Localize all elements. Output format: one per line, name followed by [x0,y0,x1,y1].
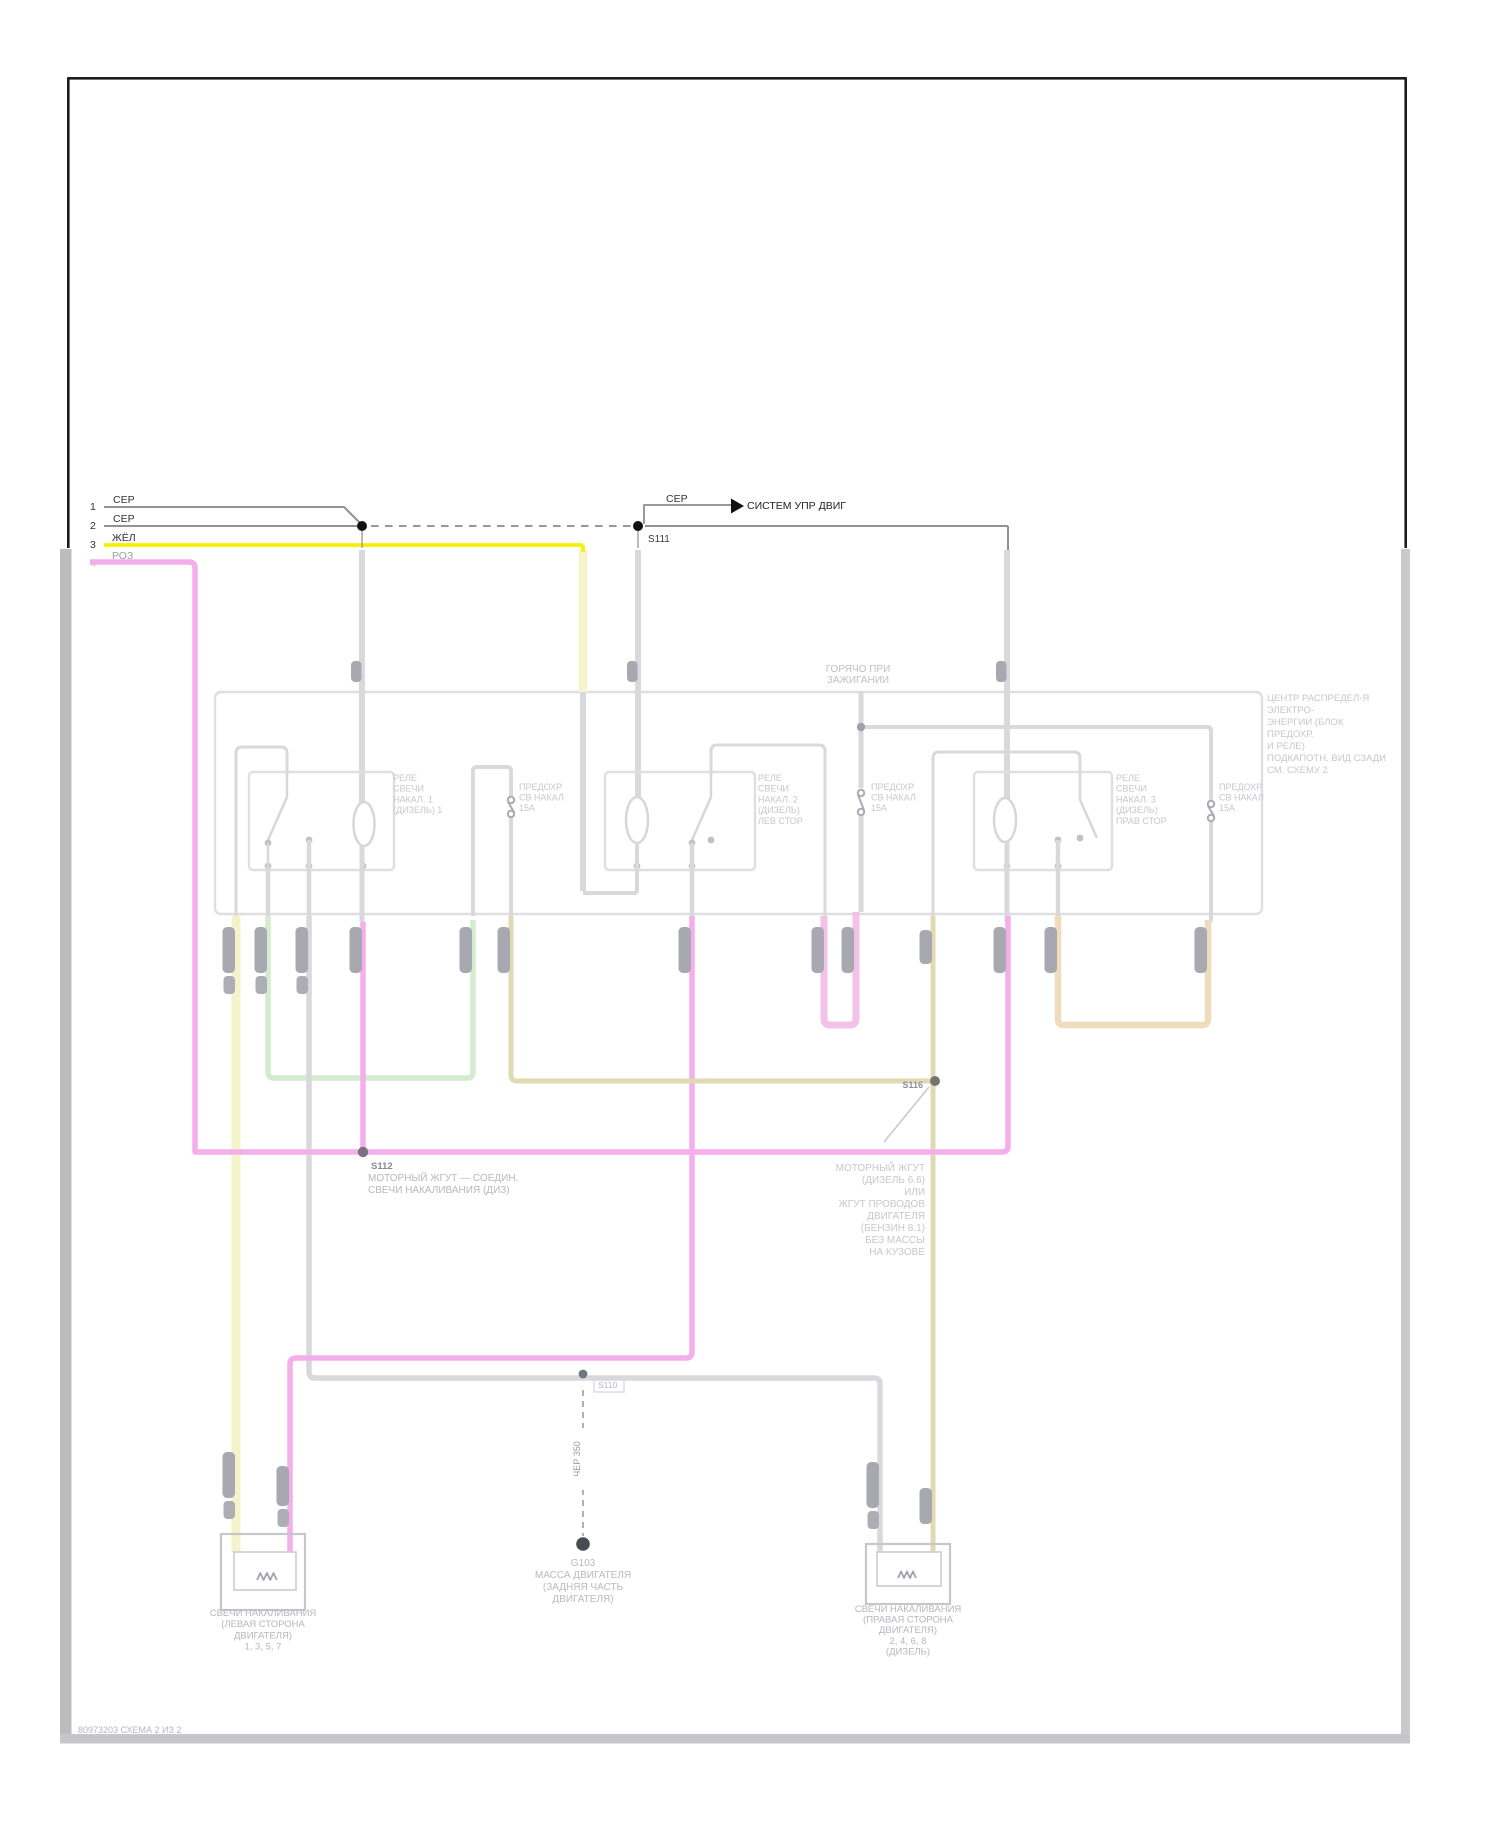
svg-text:S110: S110 [598,1380,617,1390]
svg-text:СВ НАКАЛ: СВ НАКАЛ [519,793,564,803]
svg-text:ИЛИ: ИЛИ [904,1187,925,1198]
svg-text:2: 2 [90,520,96,532]
svg-text:СИСТЕМ УПР ДВИГ: СИСТЕМ УПР ДВИГ [747,500,846,512]
svg-text:ПРАВ СТОР: ПРАВ СТОР [1116,816,1167,826]
svg-text:НАКАЛ. 2: НАКАЛ. 2 [758,794,798,804]
svg-text:2, 4, 6, 8: 2, 4, 6, 8 [890,1636,927,1647]
svg-text:И РЕЛЕ): И РЕЛЕ) [1267,741,1305,752]
svg-text:ЖГУТ ПРОВОДОВ: ЖГУТ ПРОВОДОВ [839,1199,926,1210]
svg-text:МОТОРНЫЙ ЖГУТ — СОЕДИН.: МОТОРНЫЙ ЖГУТ — СОЕДИН. [368,1171,518,1184]
svg-text:ЭЛЕКТРО-: ЭЛЕКТРО- [1267,705,1314,716]
svg-text:(ЗАДНЯЯ ЧАСТЬ: (ЗАДНЯЯ ЧАСТЬ [543,1582,624,1593]
svg-text:ЦЕНТР РАСПРЕДЕЛ-Я: ЦЕНТР РАСПРЕДЕЛ-Я [1267,693,1369,704]
svg-text:15А: 15А [871,803,887,813]
svg-text:БЕЗ МАССЫ: БЕЗ МАССЫ [865,1235,925,1246]
svg-text:S112: S112 [371,1161,393,1172]
svg-text:РЕЛЕ: РЕЛЕ [758,773,782,783]
svg-text:СВ НАКАЛ: СВ НАКАЛ [1219,793,1264,803]
svg-text:(ДИЗЕЛЬ): (ДИЗЕЛЬ) [1116,805,1158,815]
svg-text:(ЛЕВАЯ СТОРОНА: (ЛЕВАЯ СТОРОНА [221,1619,305,1630]
svg-text:НА КУЗОВЕ: НА КУЗОВЕ [869,1247,925,1258]
svg-text:РЕЛЕ: РЕЛЕ [1116,773,1140,783]
svg-text:ПРЕДОХР: ПРЕДОХР [519,782,562,792]
svg-text:НАКАЛ. 1: НАКАЛ. 1 [393,794,433,804]
svg-text:1: 1 [90,501,96,513]
svg-text:ЛЕВ СТОР: ЛЕВ СТОР [758,816,803,826]
svg-text:ДВИГАТЕЛЯ): ДВИГАТЕЛЯ) [552,1594,613,1605]
svg-text:S116: S116 [902,1080,923,1090]
svg-text:(ДИЗЕЛЬ) 1: (ДИЗЕЛЬ) 1 [393,805,442,815]
svg-text:ПОДКАПОТН. ВИД СЗАДИ: ПОДКАПОТН. ВИД СЗАДИ [1267,753,1386,764]
svg-text:РЕЛЕ: РЕЛЕ [393,773,417,783]
svg-text:(БЕНЗИН 8.1): (БЕНЗИН 8.1) [861,1223,925,1234]
svg-text:ЖЁЛ: ЖЁЛ [112,532,136,544]
svg-text:СЕР: СЕР [113,513,135,525]
svg-text:3: 3 [90,539,96,551]
svg-text:ЗАЖИГАНИИ: ЗАЖИГАНИИ [827,675,889,686]
svg-text:S111: S111 [648,534,670,545]
svg-text:1, 3, 5, 7: 1, 3, 5, 7 [245,1642,282,1653]
svg-text:(ДИЗЕЛЬ 6.6): (ДИЗЕЛЬ 6.6) [862,1175,925,1186]
svg-text:СВЕЧИ: СВЕЧИ [393,784,424,794]
svg-text:СВЕЧИ НАКАЛИВАНИЯ: СВЕЧИ НАКАЛИВАНИЯ [855,1604,962,1615]
svg-text:80973203 СХЕМА 2 ИЗ 2: 80973203 СХЕМА 2 ИЗ 2 [78,1725,181,1735]
svg-text:МАССА ДВИГАТЕЛЯ: МАССА ДВИГАТЕЛЯ [535,1570,631,1581]
svg-text:ДВИГАТЕЛЯ): ДВИГАТЕЛЯ) [879,1625,937,1636]
svg-text:НАКАЛ. 3: НАКАЛ. 3 [1116,794,1156,804]
svg-text:ГОРЯЧО ПРИ: ГОРЯЧО ПРИ [826,664,891,675]
svg-text:ПРЕДОХР: ПРЕДОХР [1219,782,1262,792]
svg-text:ДВИГАТЕЛЯ): ДВИГАТЕЛЯ) [234,1630,292,1641]
svg-text:СВ НАКАЛ: СВ НАКАЛ [871,793,916,803]
svg-text:ДВИГАТЕЛЯ: ДВИГАТЕЛЯ [867,1211,925,1222]
svg-text:СМ. СХЕМУ 2: СМ. СХЕМУ 2 [1267,765,1328,776]
svg-text:ПРЕДОХР.: ПРЕДОХР. [1267,729,1313,740]
svg-text:ЭНЕРГИИ (БЛОК: ЭНЕРГИИ (БЛОК [1267,717,1344,728]
svg-text:СВЕЧИ НАКАЛИВАНИЯ (ДИЗ): СВЕЧИ НАКАЛИВАНИЯ (ДИЗ) [368,1185,510,1196]
svg-text:ПРЕДОХР: ПРЕДОХР [871,782,914,792]
svg-text:СВЕЧИ НАКАЛИВАНИЯ: СВЕЧИ НАКАЛИВАНИЯ [210,1608,317,1619]
svg-text:СВЕЧИ: СВЕЧИ [758,784,789,794]
svg-text:(ПРАВАЯ СТОРОНА: (ПРАВАЯ СТОРОНА [863,1615,954,1626]
svg-text:ЧЕР 350: ЧЕР 350 [572,1441,582,1477]
svg-text:(ДИЗЕЛЬ): (ДИЗЕЛЬ) [758,805,800,815]
svg-text:СЕР: СЕР [666,493,688,505]
svg-text:МОТОРНЫЙ ЖГУТ: МОТОРНЫЙ ЖГУТ [836,1161,925,1174]
svg-text:15А: 15А [519,803,535,813]
svg-text:(ДИЗЕЛЬ): (ДИЗЕЛЬ) [886,1646,930,1657]
svg-text:15А: 15А [1219,803,1235,813]
svg-text:СЕР: СЕР [113,494,135,506]
svg-text:G103: G103 [571,1558,596,1569]
svg-text:СВЕЧИ: СВЕЧИ [1116,784,1147,794]
